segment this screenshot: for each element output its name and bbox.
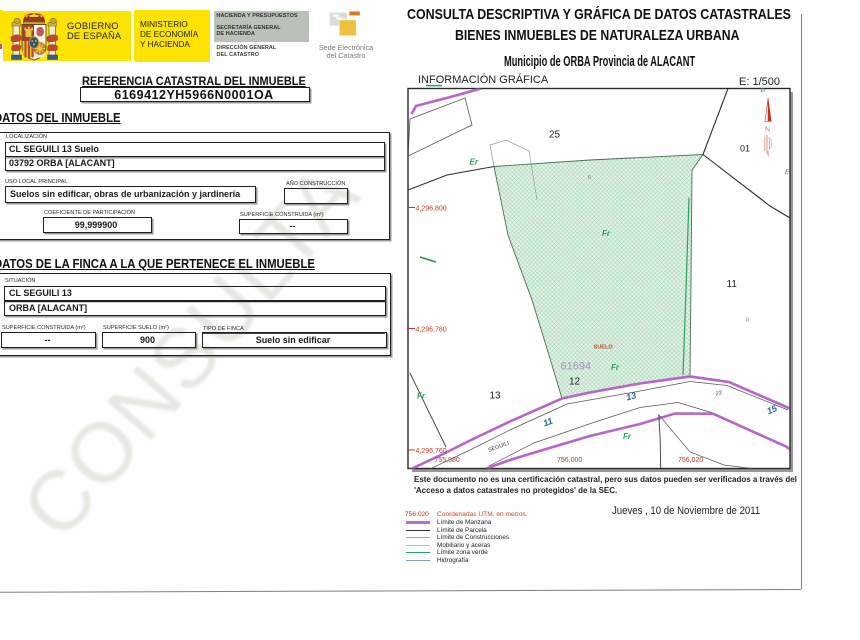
svg-text:II: II — [746, 318, 749, 324]
svg-text:756,000: 756,000 — [557, 457, 582, 464]
svg-text:25: 25 — [549, 130, 561, 141]
svg-text:Fr: Fr — [623, 432, 632, 441]
svg-text:01: 01 — [740, 144, 750, 154]
svg-text:SUELO: SUELO — [594, 345, 614, 351]
svg-text:Er: Er — [470, 158, 479, 167]
svg-text:Fr: Fr — [602, 229, 611, 238]
svg-text:E: E — [785, 169, 790, 176]
svg-text:4,296,760: 4,296,760 — [416, 448, 447, 455]
svg-text:4,296,780: 4,296,780 — [416, 327, 447, 334]
svg-text:13: 13 — [490, 391, 502, 402]
svg-text:II: II — [588, 175, 591, 181]
svg-text:12: 12 — [569, 377, 581, 388]
svg-text:Fr: Fr — [611, 363, 620, 372]
svg-text:4,296,800: 4,296,800 — [416, 206, 447, 213]
svg-text:N: N — [765, 127, 770, 134]
svg-text:755,980: 755,980 — [435, 457, 460, 464]
svg-text:756,020: 756,020 — [678, 457, 703, 464]
svg-text:61694: 61694 — [561, 361, 592, 373]
svg-text:11: 11 — [727, 279, 738, 290]
svg-text:Fr: Fr — [417, 392, 426, 401]
